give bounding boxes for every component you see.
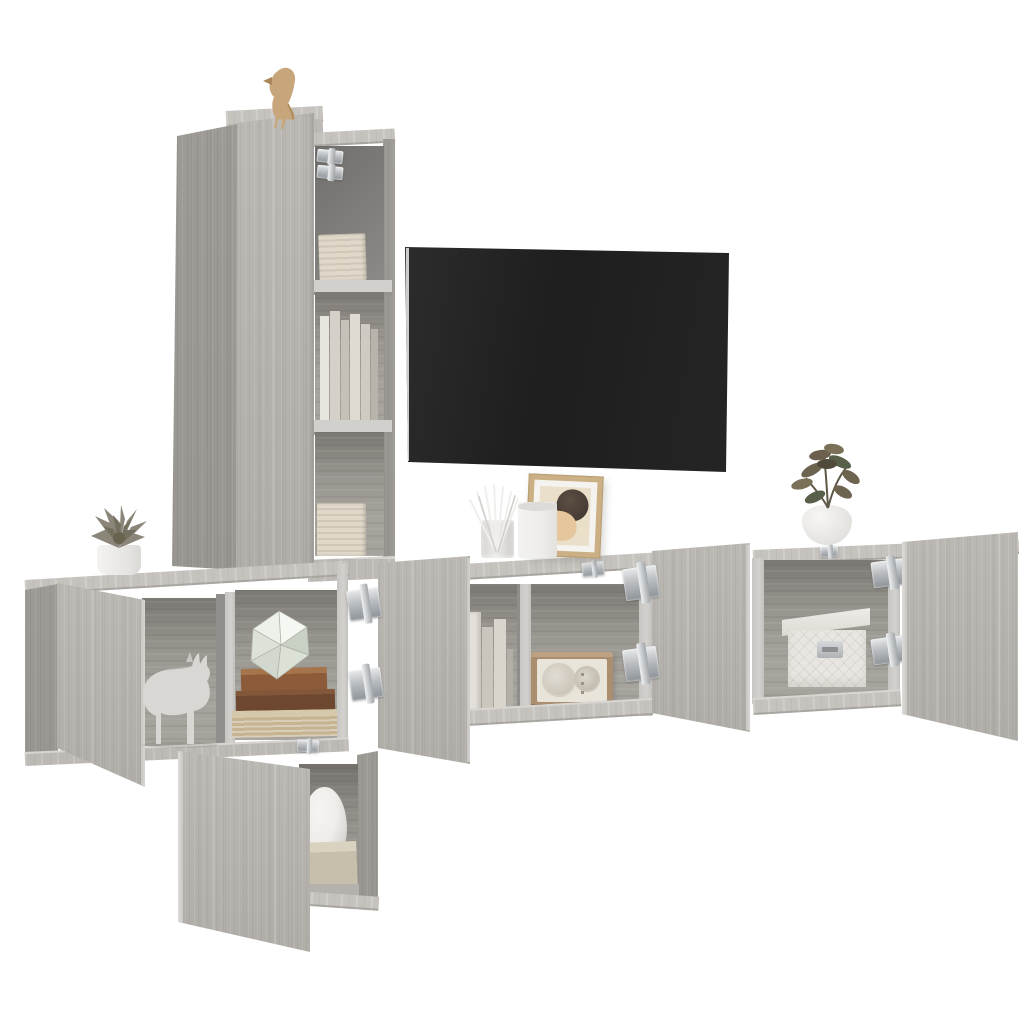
radio-face — [537, 659, 607, 702]
pillar-candle — [518, 502, 557, 558]
tv-screen — [404, 243, 730, 474]
folder-upright — [494, 619, 506, 714]
folder-upright — [482, 627, 493, 714]
book-spine — [361, 324, 370, 422]
candle-top — [518, 502, 557, 511]
storage-box-label-plate — [817, 641, 843, 658]
door-hinge — [348, 667, 384, 701]
middle-cabinet-right-door-open — [650, 541, 752, 734]
bottom-cabinet-door-open — [176, 747, 312, 956]
storage-box-body — [788, 630, 866, 687]
door-hinge — [346, 587, 382, 621]
tall-cabinet-left-side — [172, 120, 238, 572]
book-spine — [371, 329, 378, 422]
door-hinge — [622, 646, 660, 682]
book-spine — [320, 316, 329, 422]
tall-cabinet-right-side — [383, 139, 395, 585]
left-cabinet-compartment — [142, 598, 218, 746]
radio-dial-knob — [574, 666, 600, 692]
decor-figures — [0, 0, 1024, 1024]
book-stack — [317, 503, 366, 556]
book-spine — [341, 320, 349, 422]
stacked-book-bottom — [232, 709, 342, 738]
mounting-bracket — [297, 739, 320, 753]
potted-plant-leaves — [790, 442, 862, 508]
middle-cabinet-divider — [517, 584, 531, 716]
bottom-cabinet-right-side — [357, 751, 378, 909]
right-cabinet-left-edge — [752, 558, 764, 704]
mounting-bracket — [581, 561, 604, 577]
succulent-pot — [97, 545, 141, 575]
label-slot — [822, 647, 838, 652]
succulent-plant — [91, 505, 147, 548]
mounting-hinge — [316, 165, 343, 181]
left-cabinet-divider-side — [216, 594, 225, 744]
middle-cabinet-left-door-open — [375, 554, 473, 766]
mounting-bracket — [820, 545, 839, 557]
tv-edge-highlight — [406, 248, 409, 461]
left-cabinet-left-side — [25, 584, 58, 758]
door-hinge — [622, 565, 660, 601]
book-stack — [318, 233, 367, 282]
tall-cabinet-door — [236, 113, 314, 575]
folder-upright — [507, 649, 513, 714]
plant-pot — [802, 505, 852, 545]
mounting-hinge — [316, 149, 343, 165]
book-spine — [330, 311, 340, 422]
product-photo — [0, 0, 1024, 1024]
book-spine — [350, 314, 360, 422]
reed-diffuser-jar — [481, 520, 514, 558]
radio-speaker — [542, 663, 576, 697]
right-cabinet-door-open — [900, 529, 1019, 744]
radio-buttons — [581, 668, 584, 694]
